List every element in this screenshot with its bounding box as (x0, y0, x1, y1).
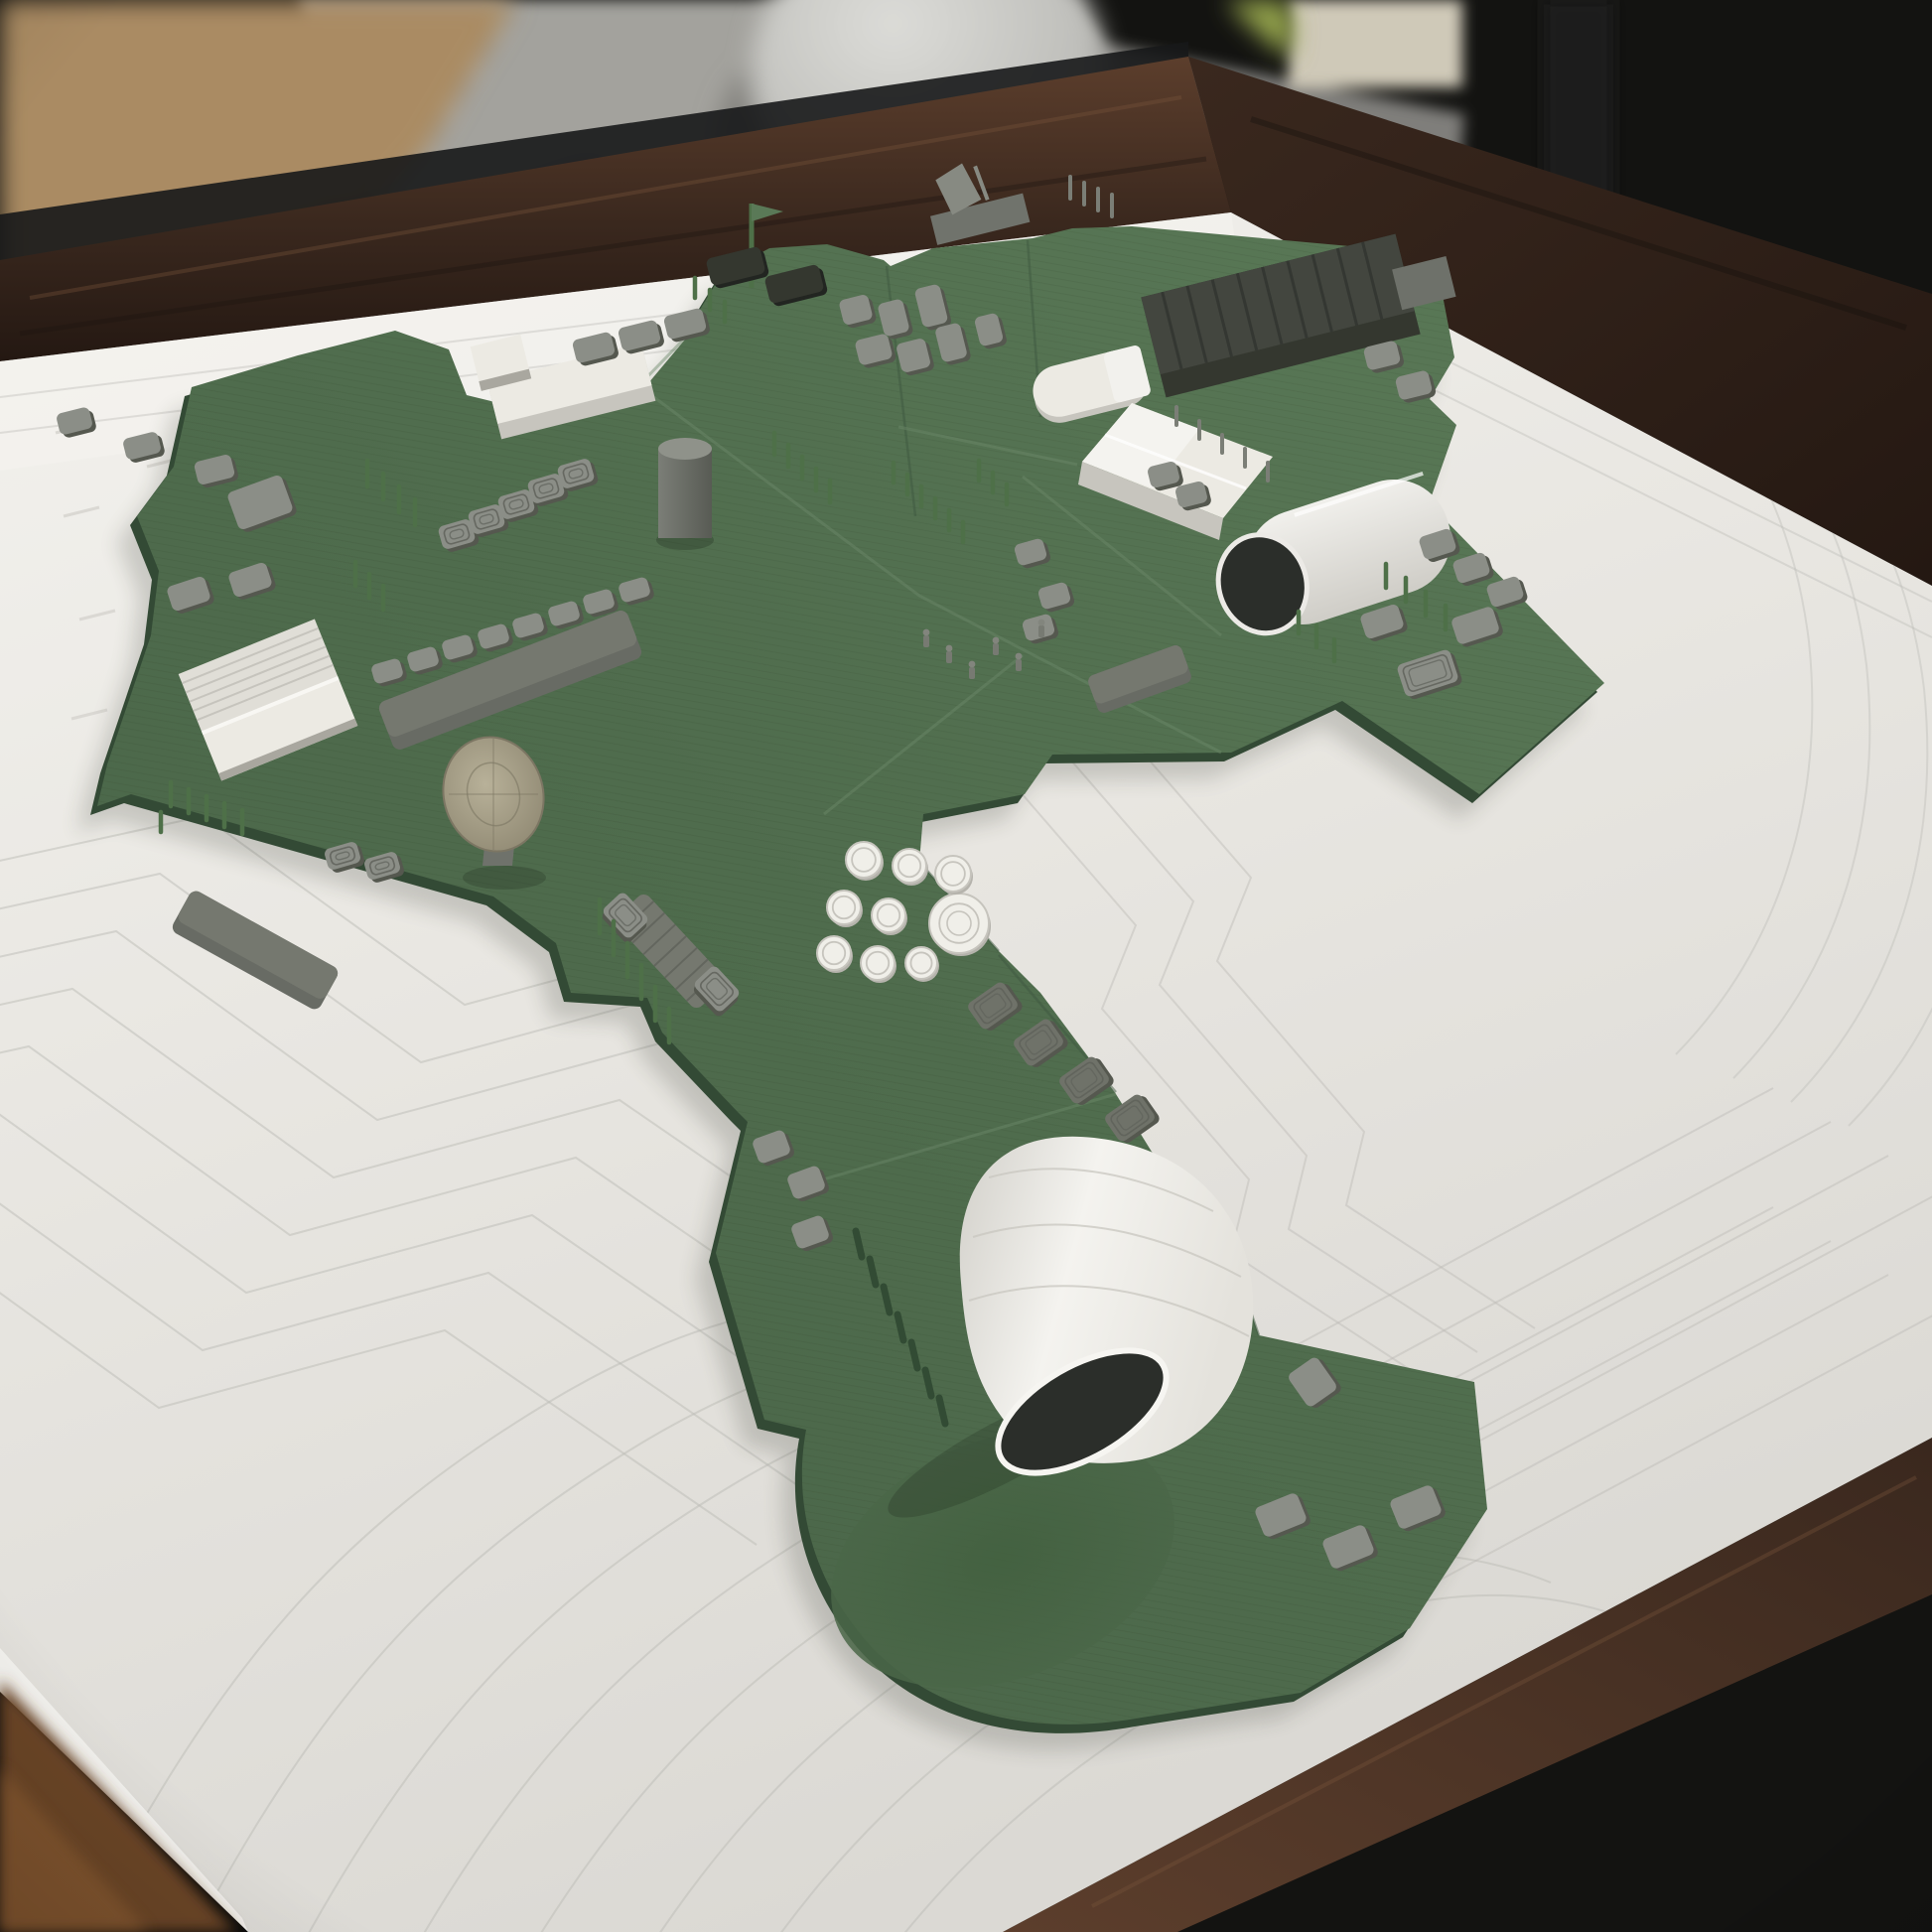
vignette-overlay (0, 0, 1932, 1932)
photo-of-3d-printed-site-model (0, 0, 1932, 1932)
